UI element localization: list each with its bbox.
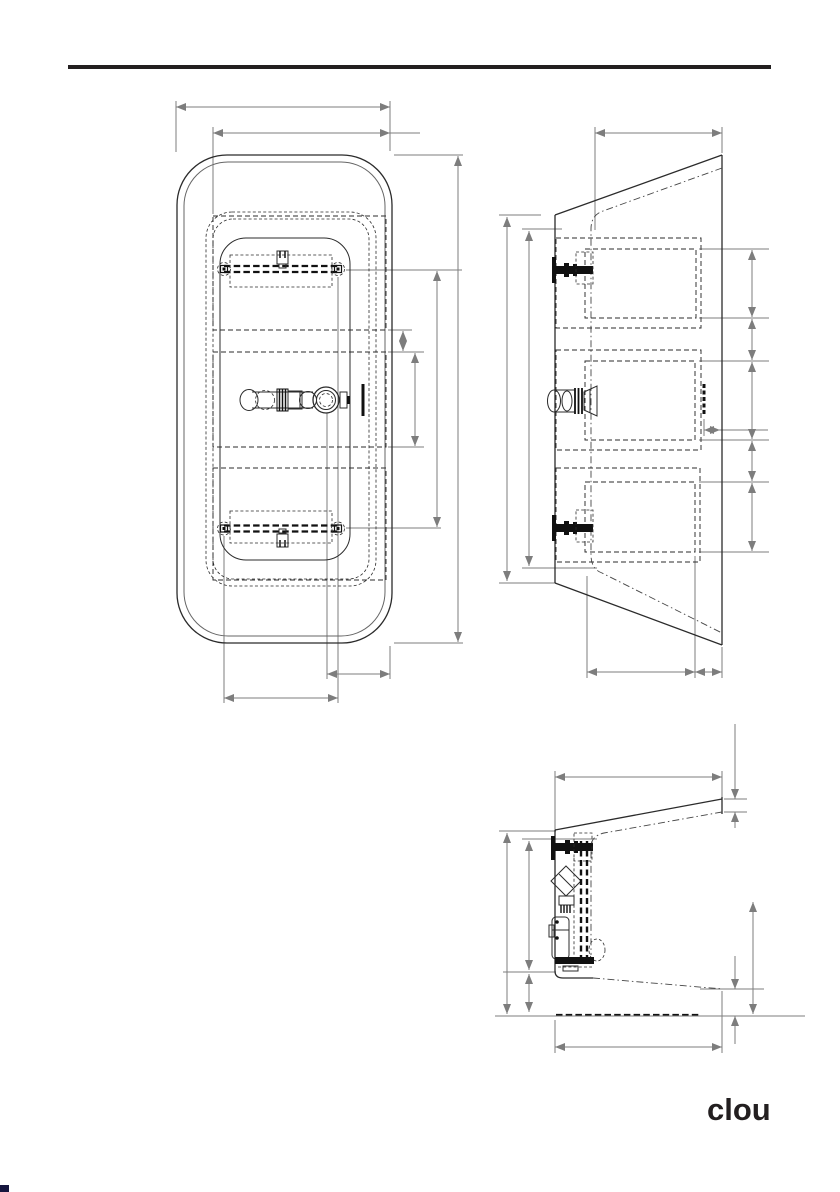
side-view-tub-outline bbox=[555, 155, 722, 645]
section-view-tub-outline bbox=[495, 797, 805, 1016]
drain-assembly bbox=[240, 384, 363, 416]
top-view-tub-outline bbox=[177, 155, 392, 643]
side-view-bottom-bolt bbox=[552, 510, 593, 542]
top-overflow-slat bbox=[218, 251, 345, 287]
header-rule bbox=[68, 65, 771, 69]
side-view-drawing bbox=[495, 110, 785, 690]
bottom-overflow-slat bbox=[218, 511, 345, 547]
top-view-drawing bbox=[150, 90, 480, 720]
side-view-dimensions bbox=[499, 127, 769, 678]
section-view-plumbing bbox=[549, 833, 605, 971]
spec-sheet-page: clou bbox=[0, 0, 840, 1192]
section-view-dimensions bbox=[499, 724, 764, 1053]
section-view-drawing bbox=[495, 715, 805, 1060]
brand-logo: clou bbox=[707, 1092, 771, 1128]
side-view-top-bolt bbox=[552, 252, 593, 284]
page-corner-mark bbox=[0, 1185, 9, 1192]
